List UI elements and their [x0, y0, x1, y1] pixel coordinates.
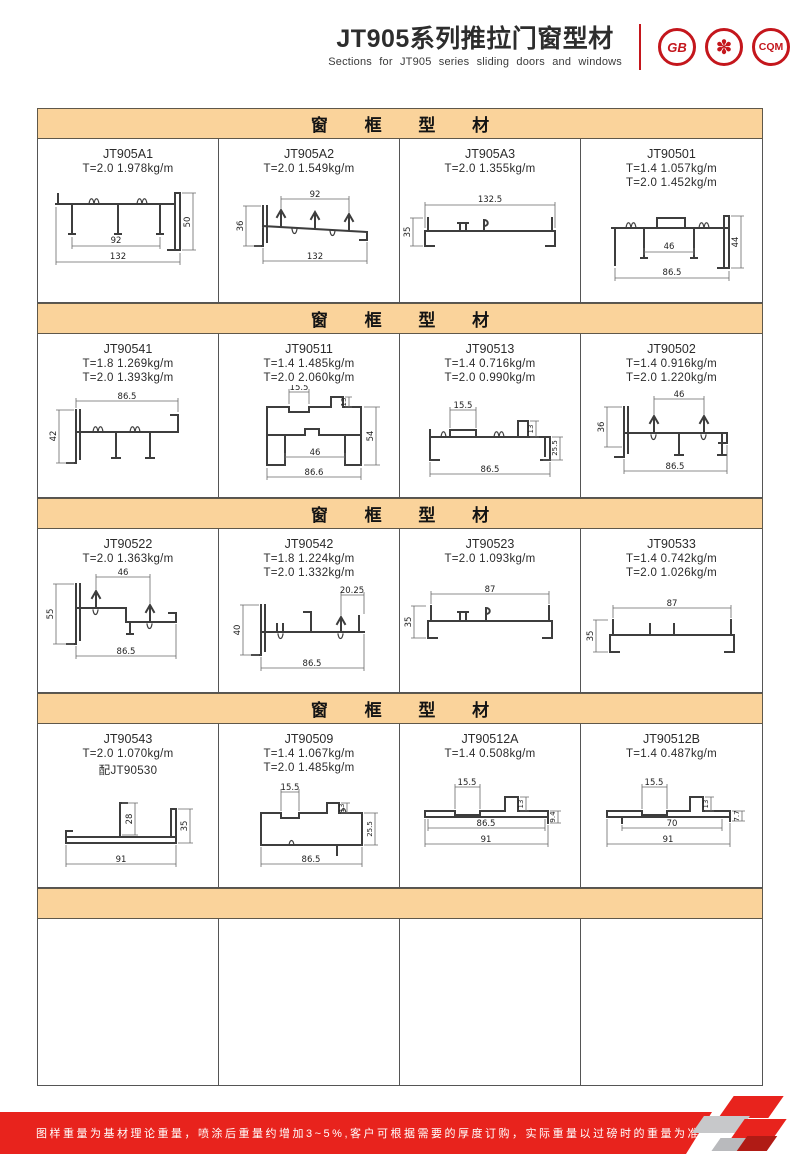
profile-code: JT90523	[400, 537, 580, 551]
profile-outline	[67, 410, 178, 463]
section-header	[37, 888, 763, 919]
profile-spec: T=1.4 0.916kg/m	[581, 358, 762, 370]
profile-code: JT90509	[219, 732, 399, 746]
dim-label: 40	[233, 625, 243, 636]
dim-label: 42	[49, 431, 59, 442]
dim-label: 91	[662, 835, 673, 845]
profile-cell: JT905A3 T=2.0 1.355kg/m 132.5 35	[400, 139, 581, 302]
profile-code: JT905A3	[400, 147, 580, 161]
dim-label: 91	[481, 835, 492, 845]
profile-spec: T=2.0 1.220kg/m	[581, 372, 762, 384]
profile-spec: T=2.0 1.452kg/m	[581, 177, 762, 189]
profile-cell: JT90512B T=1.4 0.487kg/m 15.5 13 7.7 70 …	[581, 724, 762, 887]
page-header: JT905系列推拉门窗型材 Sections for JT905 series …	[0, 24, 800, 70]
profile-drawing: 86.5 42	[38, 385, 218, 481]
profile-outline	[428, 606, 552, 638]
profile-spec: T=2.0 1.093kg/m	[400, 553, 580, 565]
dim-label: 86.5	[662, 268, 681, 278]
dim-label: 13	[340, 398, 348, 407]
profile-outline	[425, 218, 555, 246]
profile-outline	[66, 803, 176, 843]
footer-note: 图样重量为基材理论重量，喷涂后重量约增加3~5%,客户可根据需要的厚度订购，实际…	[36, 1125, 715, 1141]
profile-code: JT90541	[38, 342, 218, 356]
profile-drawing: 87 35	[400, 566, 580, 666]
profile-spec: 配JT90530	[38, 762, 218, 778]
dim-label: 86.5	[117, 647, 136, 657]
dim-label: 86.6	[305, 468, 324, 478]
table-row: JT90522 T=2.0 1.363kg/m 46 55 86.5 JT905…	[37, 529, 763, 693]
profile-spec: T=2.0 1.978kg/m	[38, 163, 218, 175]
profile-spec: T=2.0 0.990kg/m	[400, 372, 580, 384]
dim-label: 15.5	[290, 385, 309, 393]
catalog-page: JT905系列推拉门窗型材 Sections for JT905 series …	[0, 0, 800, 1167]
dim-label: 132	[110, 252, 126, 262]
dim-label: 92	[310, 190, 321, 200]
dim-label: 86.5	[302, 855, 321, 865]
profile-cell: JT905A1 T=2.0 1.978kg/m 92 132 50	[38, 139, 219, 302]
profile-drawing: 20.25 40 86.5	[219, 580, 399, 676]
profile-outline	[252, 605, 364, 655]
profile-clips	[278, 634, 343, 639]
profile-drawing: 15.5 13 9.4 86.5 91	[400, 761, 580, 861]
profile-cell: JT90502 T=1.4 0.916kg/m T=2.0 1.220kg/m …	[581, 334, 762, 497]
dim-label: 9.4	[549, 811, 557, 823]
dim-label: 46	[663, 242, 674, 252]
dim-label: 13	[517, 800, 525, 809]
profile-spec: T=2.0 1.070kg/m	[38, 748, 218, 760]
profile-cell: JT905A2 T=2.0 1.549kg/m 92 132 36	[219, 139, 400, 302]
dim-label: 35	[404, 617, 414, 628]
profile-code: JT90543	[38, 732, 218, 746]
profile-spec: T=1.4 0.716kg/m	[400, 358, 580, 370]
dim-label: 55	[46, 609, 56, 620]
page-title: JT905系列推拉门窗型材	[328, 26, 622, 52]
profile-drawing: 15.5 13 25.5 86.5	[219, 775, 399, 871]
profile-spec: T=2.0 1.363kg/m	[38, 553, 218, 565]
profile-code: JT90511	[219, 342, 399, 356]
dimension-lines	[410, 202, 555, 246]
dim-label: 35	[180, 821, 190, 832]
profile-spec: T=2.0 1.332kg/m	[219, 567, 399, 579]
profile-drawing: 15.5 13 25.5 86.5	[400, 385, 580, 481]
dim-label: 87	[666, 599, 677, 609]
profile-drawing: 28 35 91	[38, 779, 218, 873]
dim-label: 44	[731, 237, 741, 248]
profile-spec: T=2.0 2.060kg/m	[219, 372, 399, 384]
dim-label: 13	[338, 804, 346, 813]
dim-label: 86.5	[481, 465, 500, 475]
profile-drawing: 46 36 86.5	[582, 385, 762, 481]
section-header: 窗 框 型 材	[37, 498, 763, 529]
profile-spec: T=1.4 0.487kg/m	[581, 748, 762, 760]
dim-label: 13	[527, 425, 535, 434]
dimension-lines	[53, 574, 176, 659]
profile-code: JT90512A	[400, 732, 580, 746]
profile-cell: JT90522 T=2.0 1.363kg/m 46 55 86.5	[38, 529, 219, 692]
dim-label: 46	[673, 390, 684, 400]
footer-logo-icon	[686, 1090, 798, 1167]
profile-drawing: 15.5 13 7.7 70 91	[582, 761, 762, 861]
profile-clips	[93, 610, 152, 629]
profile-drawing: 15.5 13 54 46 86.6	[219, 385, 399, 483]
page-subtitle: Sections for JT905 series sliding doors …	[328, 56, 622, 68]
profile-cell: JT90513 T=1.4 0.716kg/m T=2.0 0.990kg/m …	[400, 334, 581, 497]
profile-cell: JT90541 T=1.8 1.269kg/m T=2.0 1.393kg/m …	[38, 334, 219, 497]
dim-label: 132	[307, 252, 323, 262]
footer-band: 图样重量为基材理论重量，喷涂后重量约增加3~5%,客户可根据需要的厚度订购，实际…	[0, 1112, 712, 1154]
profile-spec: T=2.0 1.393kg/m	[38, 372, 218, 384]
dim-label: 92	[111, 236, 122, 246]
profile-code: JT90533	[581, 537, 762, 551]
profile-code: JT90502	[581, 342, 762, 356]
dim-label: 86.5	[118, 392, 137, 402]
dim-label: 15.5	[644, 778, 663, 788]
profile-cell: JT90533 T=1.4 0.742kg/m T=2.0 1.026kg/m …	[581, 529, 762, 692]
cqm-certification-logo-icon: CQM	[752, 28, 790, 66]
profile-code: JT90542	[219, 537, 399, 551]
dim-label: 15.5	[454, 401, 473, 411]
dim-label: 35	[403, 227, 413, 238]
profile-spec: T=1.4 0.508kg/m	[400, 748, 580, 760]
profile-spec: T=2.0 1.485kg/m	[219, 762, 399, 774]
profile-outline	[255, 206, 367, 246]
profile-table: 窗 框 型 材 JT905A1 T=2.0 1.978kg/m 92 132 5…	[37, 108, 763, 1086]
header-divider	[639, 24, 641, 70]
profile-cell-empty	[400, 919, 581, 1085]
profile-code: JT90522	[38, 537, 218, 551]
profile-cell: JT90523 T=2.0 1.093kg/m 87 35	[400, 529, 581, 692]
dimension-lines	[425, 784, 561, 847]
footer-logo-shape	[718, 1096, 783, 1118]
profile-cell-empty	[581, 919, 762, 1085]
section-header: 窗 框 型 材	[37, 108, 763, 139]
dim-label: 13	[702, 800, 710, 809]
profile-outline	[67, 584, 176, 644]
profile-drawing: 132.5 35	[400, 176, 580, 276]
profile-cell-empty	[38, 919, 219, 1085]
profile-drawing: 92 132 50	[38, 176, 218, 276]
profile-cell: JT90542 T=1.8 1.224kg/m T=2.0 1.332kg/m …	[219, 529, 400, 692]
profile-spec: T=1.4 0.742kg/m	[581, 553, 762, 565]
dim-label: 87	[485, 585, 496, 595]
profile-code: JT905A2	[219, 147, 399, 161]
profile-spec: T=1.8 1.269kg/m	[38, 358, 218, 370]
profile-code: JT90513	[400, 342, 580, 356]
profile-cell: JT90501 T=1.4 1.057kg/m T=2.0 1.452kg/m …	[581, 139, 762, 302]
dim-label: 70	[666, 819, 677, 829]
table-row: JT905A1 T=2.0 1.978kg/m 92 132 50 JT905A…	[37, 139, 763, 303]
dim-label: 86.5	[303, 659, 322, 669]
profile-spec: T=2.0 1.026kg/m	[581, 567, 762, 579]
dim-label: 20.25	[340, 586, 364, 596]
dim-label: 7.7	[733, 810, 741, 821]
profile-outline	[615, 407, 727, 457]
profile-code: JT905A1	[38, 147, 218, 161]
dimension-lines	[607, 784, 745, 847]
table-row: JT90543 T=2.0 1.070kg/m 配JT90530 28 35 9…	[37, 724, 763, 888]
dim-label: 50	[183, 217, 193, 228]
section-header: 窗 框 型 材	[37, 693, 763, 724]
dim-label: 132.5	[478, 195, 502, 205]
gb-certification-logo-icon: GB	[658, 28, 696, 66]
dim-label: 46	[118, 568, 129, 578]
dim-label: 54	[366, 431, 376, 442]
profile-cell-empty	[219, 919, 400, 1085]
table-row	[37, 919, 763, 1086]
profile-cell: JT90543 T=2.0 1.070kg/m 配JT90530 28 35 9…	[38, 724, 219, 887]
section-header: 窗 框 型 材	[37, 303, 763, 334]
profile-spec: T=2.0 1.355kg/m	[400, 163, 580, 175]
dimension-lines	[66, 803, 193, 867]
dim-label: 86.5	[665, 462, 684, 472]
dim-label: 25.5	[551, 440, 559, 456]
profile-spec: T=1.4 1.485kg/m	[219, 358, 399, 370]
dim-label: 36	[236, 221, 246, 232]
profile-code: JT90512B	[581, 732, 762, 746]
profile-spec: T=2.0 1.549kg/m	[219, 163, 399, 175]
quality-emblem-logo-icon: ✽	[705, 28, 743, 66]
profile-drawing: 92 132 36	[219, 176, 399, 276]
profile-cell: JT90511 T=1.4 1.485kg/m T=2.0 2.060kg/m …	[219, 334, 400, 497]
dim-label: 15.5	[458, 778, 477, 788]
profile-drawing: 87 35	[582, 580, 762, 676]
dim-label: 25.5	[366, 821, 374, 837]
table-row: JT90541 T=1.8 1.269kg/m T=2.0 1.393kg/m …	[37, 334, 763, 498]
dim-label: 35	[586, 631, 596, 642]
profile-cell: JT90509 T=1.4 1.067kg/m T=2.0 1.485kg/m …	[219, 724, 400, 887]
profile-spec: T=1.4 1.067kg/m	[219, 748, 399, 760]
dim-label: 46	[310, 448, 321, 458]
profile-spec: T=1.4 1.057kg/m	[581, 163, 762, 175]
profile-drawing: 46 55 86.5	[38, 566, 218, 666]
profile-code: JT90501	[581, 147, 762, 161]
dim-label: 28	[125, 814, 135, 825]
dim-label: 15.5	[281, 783, 300, 793]
profile-outline	[610, 620, 734, 652]
dim-label: 86.5	[477, 819, 496, 829]
dim-label: 36	[597, 422, 607, 433]
dim-label: 91	[116, 855, 127, 865]
profile-drawing: 46 86.5 44	[582, 190, 762, 288]
header-titles: JT905系列推拉门窗型材 Sections for JT905 series …	[328, 26, 622, 67]
profile-cell: JT90512A T=1.4 0.508kg/m 15.5 13 9.4 86.…	[400, 724, 581, 887]
profile-spec: T=1.8 1.224kg/m	[219, 553, 399, 565]
